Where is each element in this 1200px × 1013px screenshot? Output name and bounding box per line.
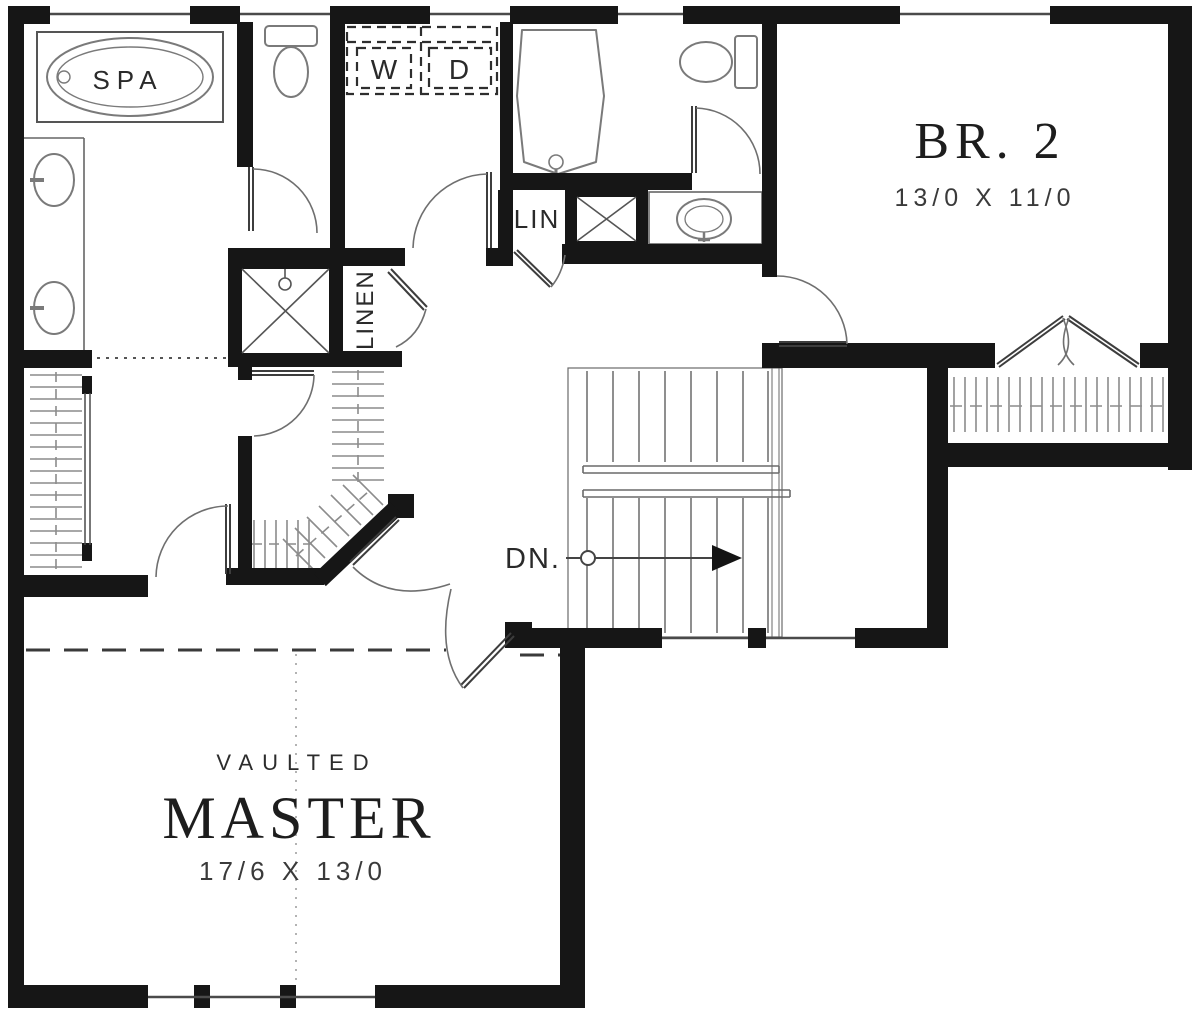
door-swing: [253, 169, 317, 233]
stair-rails: [583, 466, 790, 497]
floor-plan: SPA W D LIN LINEN DN. BR. 2 13/0 X 11/0 …: [0, 0, 1200, 1013]
laundry-door: [487, 172, 491, 248]
hall-bath-toilet-icon: [680, 36, 757, 88]
bedroom2-name: BR. 2: [914, 113, 1065, 170]
closet-to-master-door: [226, 504, 230, 574]
master-closet-west-rod: [30, 372, 82, 570]
staircase: [568, 368, 790, 637]
lin-closet-label: LIN: [514, 204, 560, 234]
washer-label: W: [371, 54, 398, 85]
door-swing: [396, 309, 426, 347]
door-swing: [413, 174, 487, 248]
closet-hatching-layer: [30, 370, 1166, 570]
washer-dryer-closet: [347, 27, 497, 94]
master-dimensions: 17/6 X 13/0: [199, 856, 387, 886]
master-name: MASTER: [162, 785, 435, 851]
floor-plan-svg: SPA W D LIN LINEN DN. BR. 2 13/0 X 11/0 …: [0, 0, 1200, 1013]
door-swing: [446, 589, 463, 688]
master-vanity: [24, 138, 84, 350]
stairs-down-label: DN.: [505, 543, 561, 575]
hall-bath-tub: [517, 30, 604, 188]
door-swing: [777, 276, 847, 344]
bedroom2-closet-rod: [950, 377, 1166, 432]
stairs-down-arrow: [566, 545, 742, 571]
door-swing: [696, 108, 760, 174]
stair-treads-upper: [587, 371, 768, 462]
stair-treads-lower: [587, 498, 768, 633]
master-toilet-icon: [265, 26, 317, 97]
master-qualifier: VAULTED: [216, 750, 377, 775]
hall-bath-door: [692, 106, 696, 173]
spa-label: SPA: [92, 65, 163, 95]
bedroom2-dimensions: 13/0 X 11/0: [894, 184, 1075, 212]
linen-tall-door: [388, 269, 427, 310]
shower: [228, 255, 343, 367]
door-swing: [254, 375, 314, 436]
door-swing: [353, 567, 450, 591]
reference-lines: [26, 358, 566, 986]
door-swing: [156, 506, 228, 577]
master-bath-door: [249, 167, 253, 231]
lin-closet-door: [514, 250, 553, 287]
chase: [565, 186, 648, 252]
closet-door-panels: [85, 393, 90, 545]
linen-closet-label: LINEN: [352, 269, 379, 350]
hall-bath-vanity: [649, 192, 762, 244]
dryer-label: D: [449, 54, 469, 85]
bath-to-closet-door: [252, 371, 314, 375]
